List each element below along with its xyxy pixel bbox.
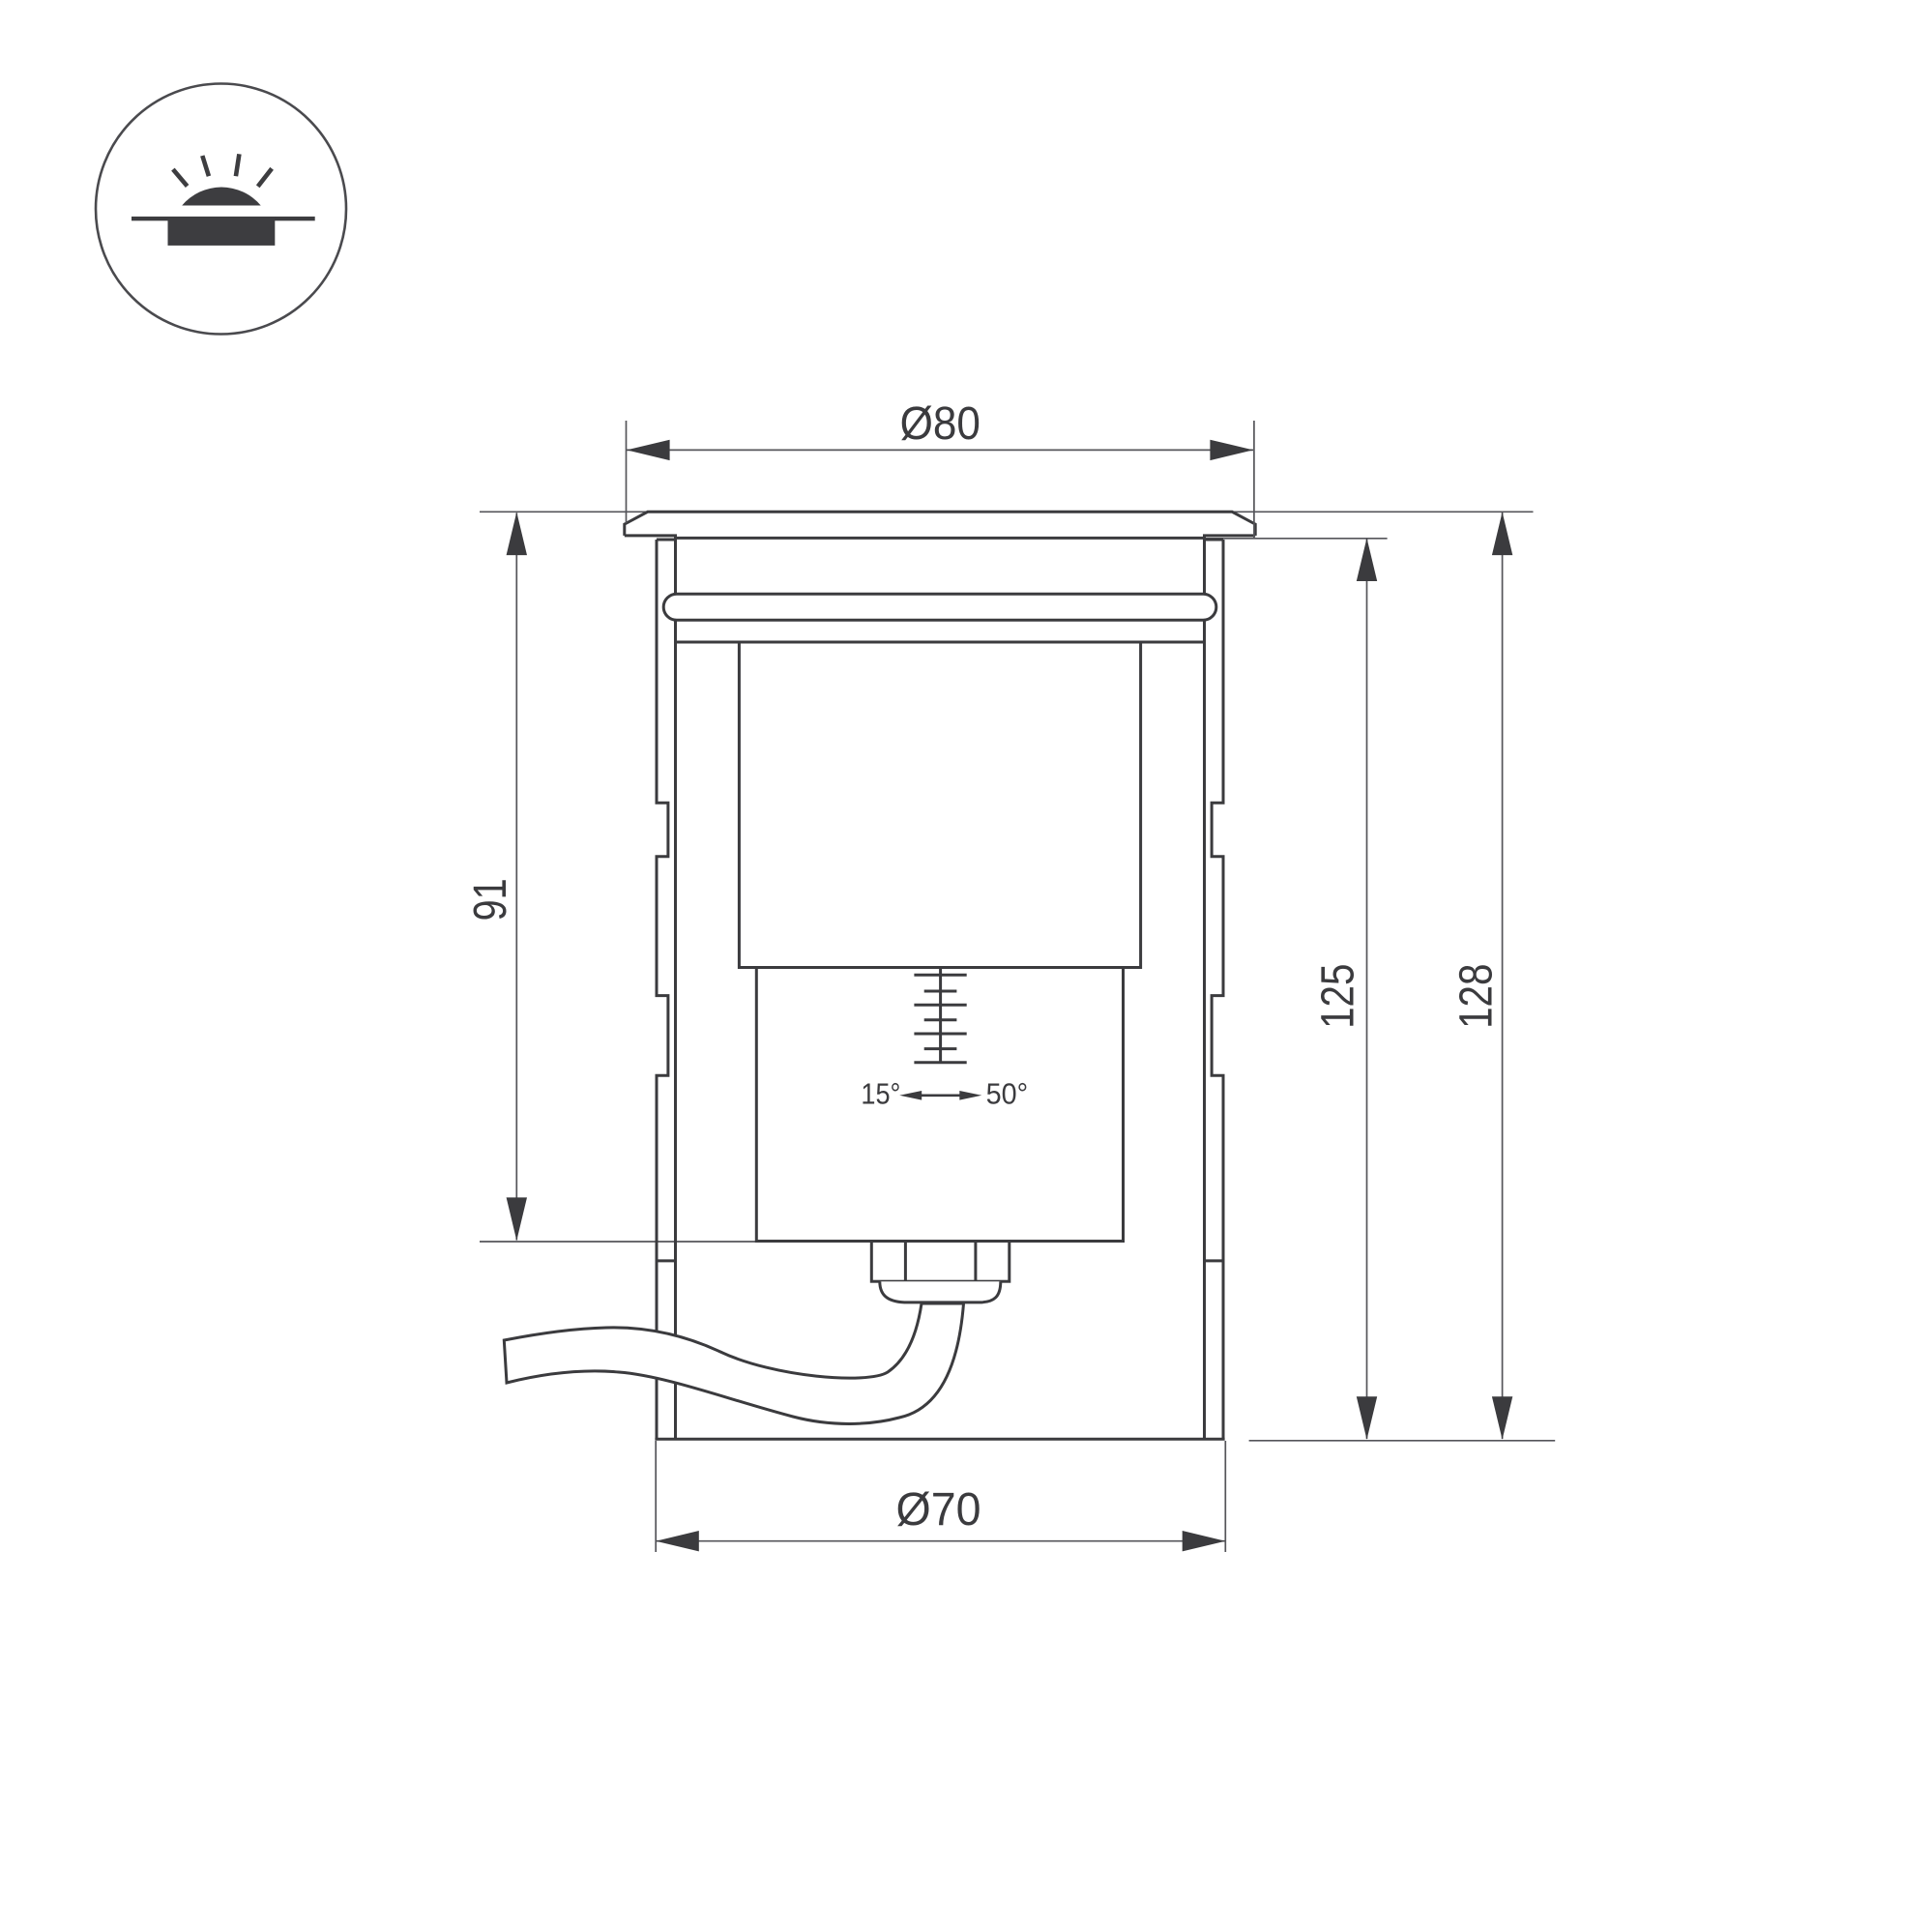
svg-text:125: 125 [1313,964,1364,1029]
svg-text:91: 91 [465,878,516,921]
svg-text:Ø80: Ø80 [900,398,981,450]
svg-text:15°: 15° [861,1077,900,1111]
svg-text:50°: 50° [986,1077,1029,1111]
svg-text:128: 128 [1450,963,1502,1028]
svg-text:Ø70: Ø70 [896,1484,981,1536]
